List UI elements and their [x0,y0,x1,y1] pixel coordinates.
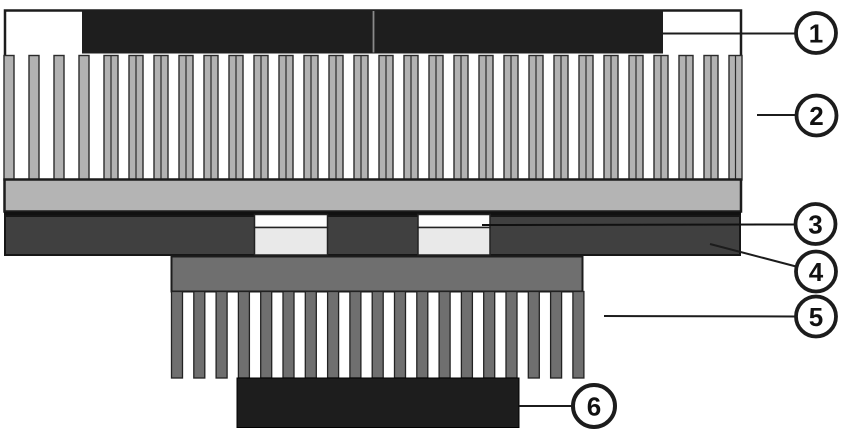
svg-text:6: 6 [587,392,601,422]
svg-text:4: 4 [809,257,824,287]
svg-text:1: 1 [809,19,823,49]
svg-text:3: 3 [808,210,822,240]
svg-text:5: 5 [809,302,823,332]
svg-text:2: 2 [809,101,823,131]
